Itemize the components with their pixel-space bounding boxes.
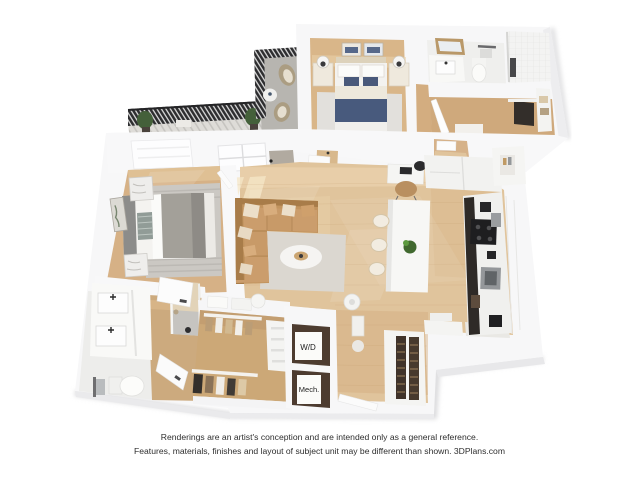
svg-text:W/D: W/D xyxy=(300,343,316,352)
svg-text:Mech.: Mech. xyxy=(299,385,319,394)
